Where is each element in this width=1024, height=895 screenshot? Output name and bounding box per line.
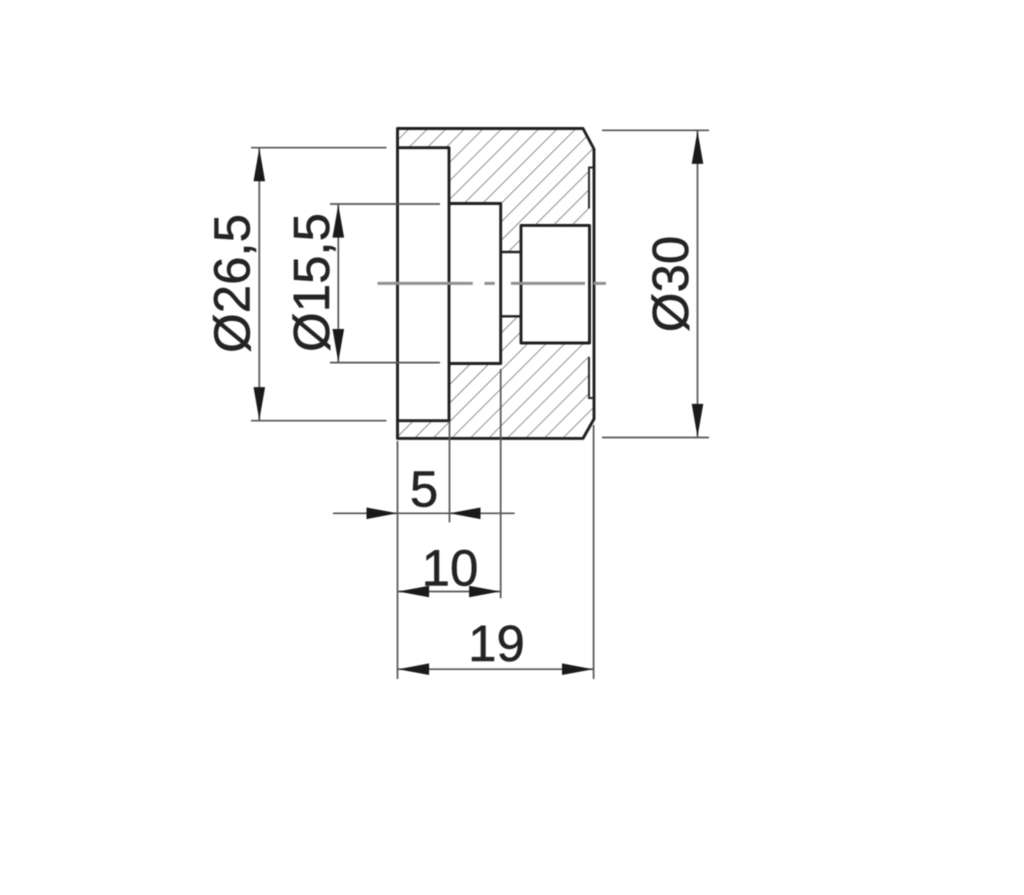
- svg-text:Ø15,5: Ø15,5: [283, 213, 340, 352]
- svg-text:19: 19: [468, 615, 525, 672]
- svg-text:5: 5: [410, 461, 438, 518]
- svg-text:Ø30: Ø30: [642, 236, 699, 332]
- svg-text:Ø26,5: Ø26,5: [204, 214, 261, 353]
- svg-text:10: 10: [422, 539, 479, 596]
